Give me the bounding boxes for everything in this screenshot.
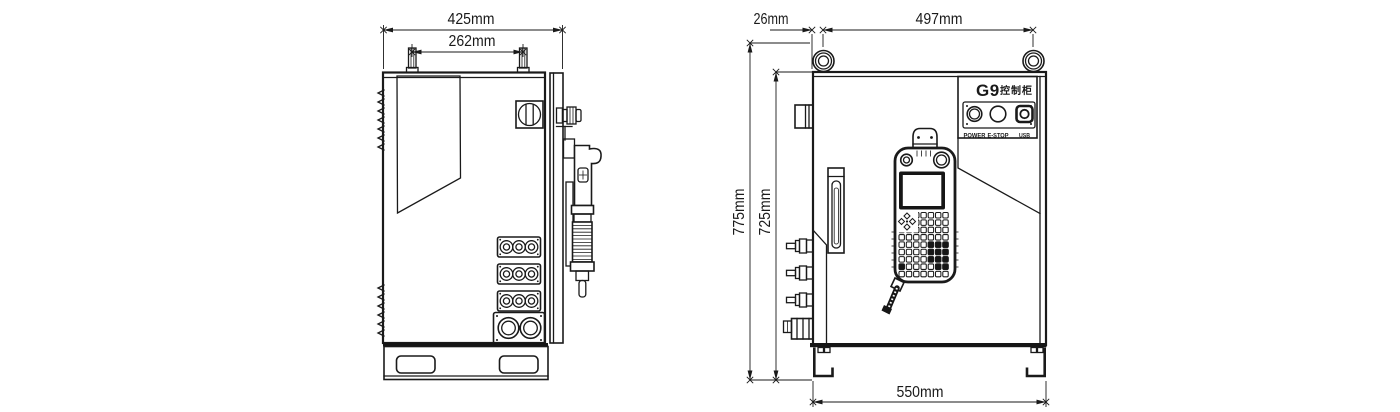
connector-plate-row-2 — [498, 264, 541, 284]
dimension-base-width: 550mm — [810, 381, 1049, 407]
pendant-keypad — [897, 211, 949, 277]
nameplate-model-text: G9 — [976, 81, 1000, 100]
cable-gland-4 — [784, 319, 814, 340]
dim-total-height-label: 775mm — [731, 189, 748, 236]
front-view: 26mm 497mm 775mm 725mm — [731, 11, 1049, 407]
label-estop: E-STOP — [988, 133, 1010, 140]
torch-bracket — [557, 127, 575, 159]
forklift-slot-left — [397, 356, 436, 373]
dim-total-width-label: 425mm — [448, 11, 495, 28]
estop-hole — [990, 106, 1006, 122]
torch-connector — [557, 107, 582, 124]
cable-gland-1 — [787, 239, 814, 253]
control-plate: POWER E-STOP USB — [963, 102, 1035, 140]
usb-port — [1017, 106, 1033, 122]
pendant-nav-keys — [897, 211, 919, 233]
dim-base-width-label: 550mm — [897, 384, 944, 401]
pendant-cable — [882, 278, 905, 315]
front-crease-left — [813, 230, 827, 343]
dim-lug-spacing-label: 262mm — [449, 33, 496, 50]
label-usb: USB — [1019, 133, 1030, 140]
dimension-eye-offset: 26mm — [754, 11, 816, 69]
side-view: 425mm 262mm — [378, 11, 601, 380]
main-power-switch — [516, 101, 543, 128]
dim-eye-offset-label: 26mm — [754, 11, 789, 28]
lifting-eye-left — [813, 51, 834, 72]
dimension-body-height: 725mm — [757, 69, 813, 383]
cable-gland-2 — [787, 266, 814, 280]
power-socket — [967, 107, 982, 122]
base-side — [383, 343, 548, 380]
connector-plate-row-3 — [498, 291, 541, 311]
lifting-eye-right — [1023, 51, 1044, 72]
dim-body-height-label: 725mm — [757, 189, 774, 236]
front-crease-right — [958, 138, 1040, 214]
nameplate: G9 控制柜 POWER E-STOP USB — [958, 77, 1037, 140]
torch-ribs — [573, 222, 593, 262]
cable-gland-3 — [787, 293, 814, 307]
power-inlet-plate — [494, 313, 545, 344]
torch-nozzle — [576, 271, 589, 297]
base-front — [810, 343, 1047, 376]
forklift-slot-right — [500, 356, 539, 373]
nameplate-type-text: 控制柜 — [1000, 84, 1033, 97]
dimension-lug-spacing: 262mm — [409, 33, 526, 57]
engineering-drawing-canvas: 425mm 262mm — [0, 0, 1400, 412]
pendant-screen — [899, 172, 945, 210]
aux-connector-box — [795, 105, 813, 128]
teach-pendant — [882, 129, 959, 315]
door-crease-panel — [397, 76, 461, 213]
label-power: POWER — [964, 133, 986, 140]
dimension-eye-spacing: 497mm — [820, 11, 1036, 47]
foot-right — [1027, 348, 1045, 377]
dim-eye-spacing-label: 497mm — [916, 11, 963, 28]
technical-drawing: 425mm 262mm — [0, 0, 1400, 412]
door-handle — [828, 168, 844, 253]
connector-plate-row-1 — [498, 237, 541, 257]
